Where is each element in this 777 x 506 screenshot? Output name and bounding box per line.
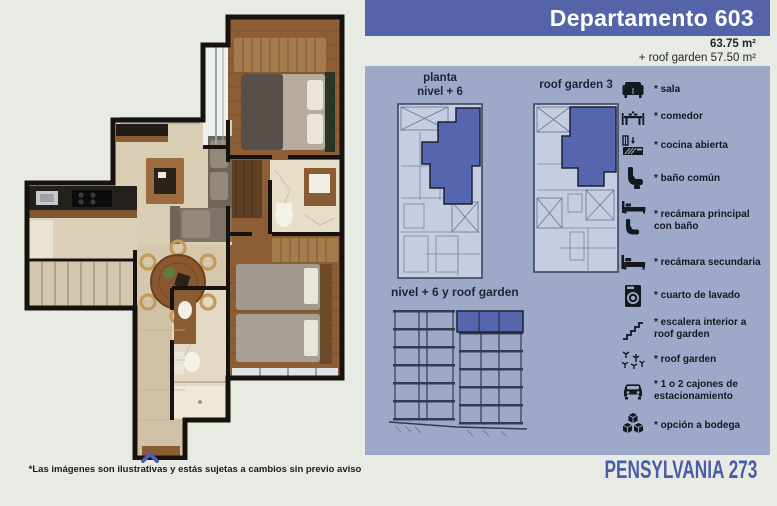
principal-bedroom xyxy=(234,38,335,152)
keyplan-roofgarden xyxy=(532,102,620,274)
car-icon xyxy=(620,382,646,400)
legend-item-cocina: * cocina abierta xyxy=(620,134,768,158)
section-highlight xyxy=(457,311,523,332)
sofa-icon xyxy=(620,80,646,100)
bed-icon xyxy=(620,254,646,272)
legend-item-estacionamiento: * 1 o 2 cajones de estacionamiento xyxy=(620,377,768,405)
info-panel: planta nivel + 6 roof garden 3 xyxy=(365,66,770,455)
washing-machine-icon xyxy=(620,284,646,308)
disclaimer-text: *Las imágenes son ilustrativas y estás s… xyxy=(20,464,370,475)
keyplan-nivel6 xyxy=(396,102,484,280)
legend-item-lavado: * cuarto de lavado xyxy=(620,284,768,308)
dining-table-icon xyxy=(620,107,646,127)
legend-item-bano: * baño común xyxy=(620,165,768,193)
legend-item-escalera: * escalera interior a roof garden xyxy=(620,315,768,343)
area-summary: 63.75 m² + roof garden 57.50 m² xyxy=(365,36,770,66)
legend-item-recamara-principal: * recámara principal con baño xyxy=(620,200,768,242)
stairs-icon xyxy=(620,317,646,341)
legend: * sala * comedor xyxy=(620,80,768,440)
legend-item-bodega: * opción a bodega xyxy=(620,412,768,440)
legend-item-recamara-secundaria: * recámara secundaria xyxy=(620,249,768,277)
plan-title-roofgarden: roof garden 3 xyxy=(515,78,637,92)
plan-title-section: nivel + 6 y roof garden xyxy=(391,285,611,300)
area-roof-garden: + roof garden 57.50 m² xyxy=(365,51,756,65)
legend-item-sala: * sala xyxy=(620,80,768,100)
toilet-icon xyxy=(620,166,646,192)
legend-item-roofgarden: * roof garden xyxy=(620,350,768,370)
brochure-page: *Las imágenes son ilustrativas y estás s… xyxy=(0,0,777,506)
brand-logo: PENSYLVANIA 273 xyxy=(604,457,757,485)
bed-bath-icon xyxy=(620,200,646,242)
storage-boxes-icon xyxy=(620,412,646,440)
interior-stairs xyxy=(29,260,133,306)
roof-garden-icon xyxy=(620,350,646,370)
legend-item-comedor: * comedor xyxy=(620,107,768,127)
page-title: Departamento 603 xyxy=(365,0,770,36)
main-floorplan-render xyxy=(20,10,360,460)
building-section-diagram xyxy=(387,306,529,440)
entrance-arrow-icon xyxy=(140,450,160,464)
kitchen-icon xyxy=(620,134,646,158)
plan-title-nivel6: planta nivel + 6 xyxy=(373,71,507,100)
area-main: 63.75 m² xyxy=(365,38,756,51)
